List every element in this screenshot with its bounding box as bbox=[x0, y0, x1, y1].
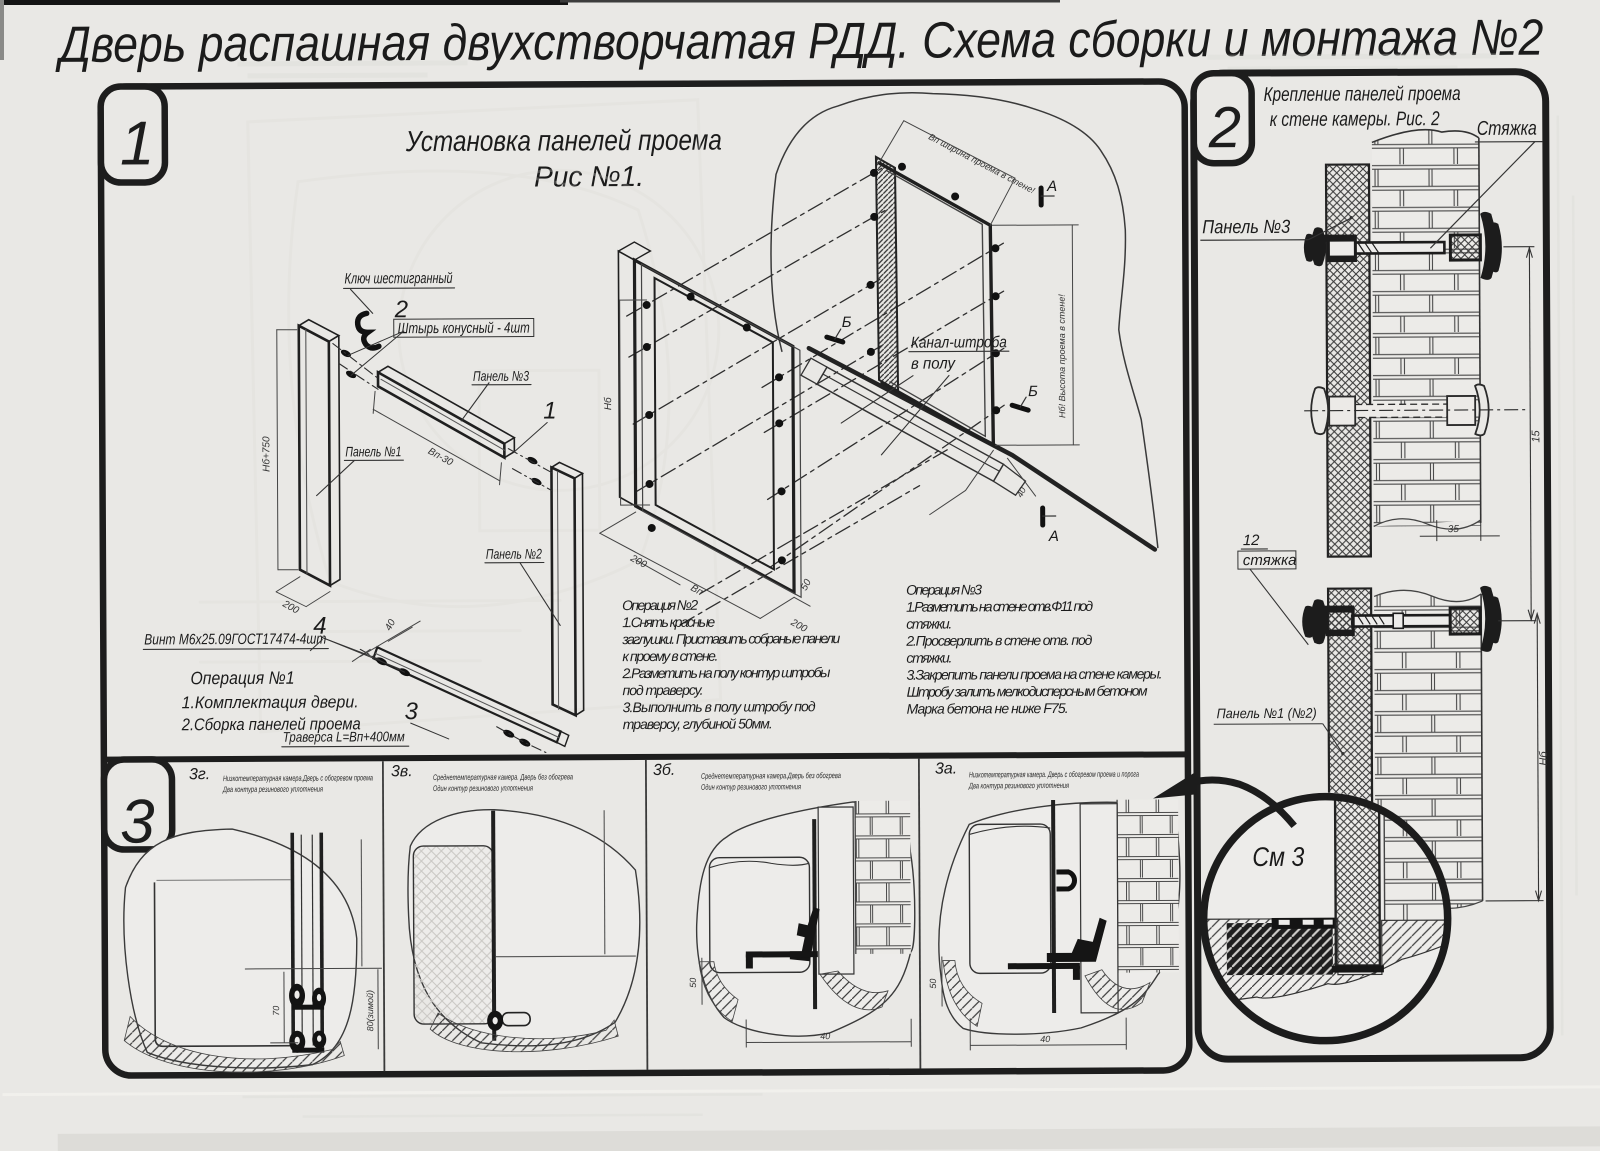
svg-text:Б: Б bbox=[1028, 383, 1038, 400]
svg-text:3а.: 3а. bbox=[935, 760, 957, 777]
svg-text:3.Выполнить в полу штробу под: 3.Выполнить в полу штробу под bbox=[623, 698, 816, 715]
svg-text:2: 2 bbox=[1208, 95, 1242, 160]
svg-text:Канал-штроба: Канал-штроба bbox=[911, 334, 1007, 351]
svg-text:А: А bbox=[1046, 178, 1057, 195]
svg-text:35: 35 bbox=[1448, 524, 1460, 535]
svg-text:Крепление панелей проема: Крепление панелей проема bbox=[1264, 83, 1461, 106]
svg-text:А: А bbox=[1048, 528, 1059, 545]
svg-text:Траверса L=Bп+400мм: Траверса L=Bп+400мм bbox=[283, 728, 405, 745]
svg-text:40: 40 bbox=[820, 1031, 830, 1041]
svg-text:Один контур резинового уплотне: Один контур резинового уплотнения bbox=[701, 782, 802, 791]
svg-text:1.Снять красные: 1.Снять красные bbox=[622, 614, 715, 630]
svg-text:80(зимой): 80(зимой) bbox=[365, 990, 375, 1031]
svg-text:Панель №1: Панель №1 bbox=[345, 443, 401, 459]
svg-text:стяжки.: стяжки. bbox=[906, 649, 952, 665]
svg-text:Установка панелей проема: Установка панелей проема bbox=[405, 125, 722, 159]
svg-text:Нб! Высота проема в стене!: Нб! Высота проема в стене! bbox=[1057, 294, 1068, 418]
svg-text:стяжки.: стяжки. bbox=[906, 615, 952, 631]
svg-text:Марка бетона не ниже F75.: Марка бетона не ниже F75. bbox=[907, 700, 1069, 717]
svg-text:Стяжка: Стяжка bbox=[1477, 118, 1537, 140]
svg-text:Операция №2: Операция №2 bbox=[622, 597, 698, 613]
svg-text:Панель №3: Панель №3 bbox=[473, 368, 529, 384]
svg-text:под траверсу.: под траверсу. bbox=[622, 682, 703, 698]
svg-text:1: 1 bbox=[543, 397, 556, 424]
svg-text:2.Разметить на полу контур штр: 2.Разметить на полу контур штробы bbox=[621, 664, 831, 681]
svg-text:Два контура резинового уплотне: Два контура резинового уплотнения bbox=[968, 781, 1069, 790]
svg-text:1.Разметить на стене отв.Ф11 п: 1.Разметить на стене отв.Ф11 под bbox=[906, 598, 1093, 615]
svg-text:2.Просверлить в стене отв.: 2.Просверлить в стене отв. под bbox=[905, 632, 1092, 649]
svg-text:3в.: 3в. bbox=[391, 763, 413, 780]
svg-text:Нб+750: Нб+750 bbox=[260, 436, 272, 472]
svg-text:3: 3 bbox=[405, 698, 419, 725]
svg-text:Б: Б bbox=[842, 314, 852, 331]
svg-text:Операция №3: Операция №3 bbox=[906, 581, 982, 597]
svg-text:См 3: См 3 bbox=[1252, 842, 1304, 872]
svg-text:Ключ шестигранный: Ключ шестигранный bbox=[344, 270, 453, 288]
svg-text:Два контура резинового уплотне: Два контура резинового уплотнения bbox=[222, 785, 323, 794]
svg-text:3б.: 3б. bbox=[653, 762, 675, 779]
svg-text:Низкотемпературная камера.Двер: Низкотемпературная камера.Дверь с обогре… bbox=[223, 773, 373, 783]
svg-text:Среднетемпературная камера.Две: Среднетемпературная камера.Дверь без обо… bbox=[701, 771, 841, 781]
svg-text:15: 15 bbox=[1530, 429, 1542, 442]
svg-text:50: 50 bbox=[928, 979, 938, 989]
svg-text:Панель №2: Панель №2 bbox=[486, 546, 542, 562]
svg-text:Рис №1.: Рис №1. bbox=[534, 161, 644, 194]
svg-text:траверсу, глубиной 50мм.: траверсу, глубиной 50мм. bbox=[623, 715, 773, 732]
svg-text:в полу: в полу bbox=[911, 355, 956, 372]
svg-text:1: 1 bbox=[120, 109, 155, 178]
svg-text:стяжка: стяжка bbox=[1243, 552, 1297, 569]
svg-text:к проему в стене.: к проему в стене. bbox=[622, 648, 718, 664]
svg-text:50: 50 bbox=[688, 978, 698, 988]
svg-text:Среднетемпературная камера. Дв: Среднетемпературная камера. Дверь без об… bbox=[433, 772, 573, 782]
svg-text:3: 3 bbox=[120, 787, 155, 856]
svg-text:Панель №1 (№2): Панель №1 (№2) bbox=[1217, 705, 1317, 721]
svg-text:1.Комплектация двери.: 1.Комплектация двери. bbox=[182, 692, 359, 712]
svg-text:Штробу залить мелкодисперсным: Штробу залить мелкодисперсным бетоном bbox=[907, 683, 1148, 700]
svg-text:Панель №3: Панель №3 bbox=[1202, 217, 1290, 238]
svg-text:Винт М6х25.09ГОСТ17474-4шт: Винт М6х25.09ГОСТ17474-4шт bbox=[144, 631, 326, 649]
svg-text:к стене камеры. Рис. 2: к стене камеры. Рис. 2 bbox=[1270, 108, 1440, 131]
svg-text:40: 40 bbox=[1040, 1034, 1050, 1044]
svg-text:Операция №1: Операция №1 bbox=[190, 668, 294, 689]
svg-text:3г.: 3г. bbox=[189, 766, 210, 783]
svg-text:Низкотемпературная камера. Две: Низкотемпературная камера. Дверь с обогр… bbox=[969, 770, 1139, 780]
svg-text:Нб: Нб bbox=[1538, 751, 1550, 766]
svg-text:Нб: Нб bbox=[602, 397, 614, 410]
svg-text:70: 70 bbox=[271, 1006, 281, 1016]
svg-text:12: 12 bbox=[1243, 532, 1260, 549]
svg-text:Штырь конусный - 4шт: Штырь конусный - 4шт bbox=[398, 320, 530, 338]
svg-text:Один контур резинового уплотне: Один контур резинового уплотнения bbox=[433, 784, 534, 793]
svg-text:заглушки. Приставить собраные: заглушки. Приставить собраные панели bbox=[621, 630, 840, 647]
svg-text:3.Закрепить панели проема на с: 3.Закрепить панели проема на стене камер… bbox=[906, 665, 1162, 682]
